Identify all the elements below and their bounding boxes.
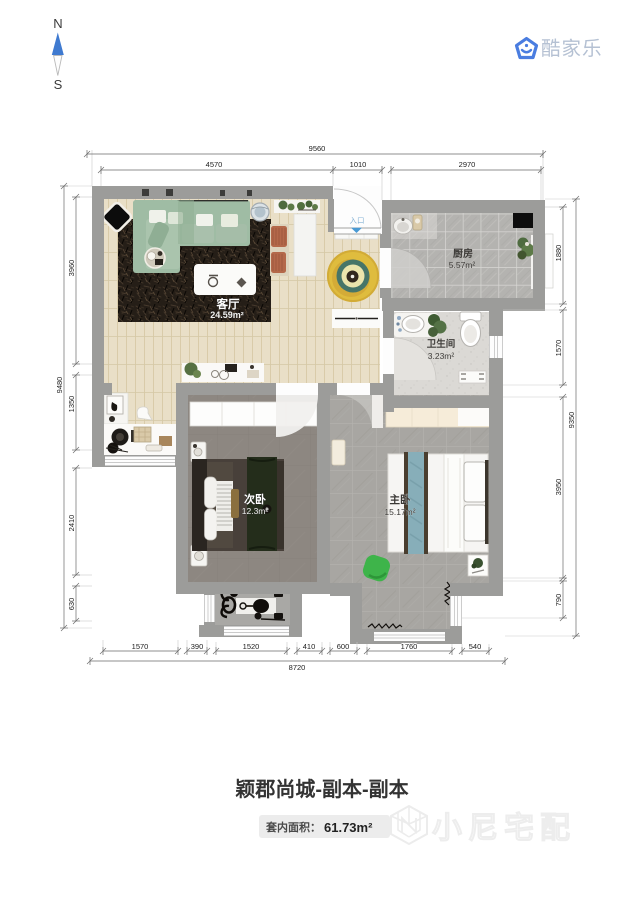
- svg-text:390: 390: [191, 642, 204, 651]
- svg-text:8720: 8720: [289, 663, 306, 672]
- svg-text:5.57m²: 5.57m²: [449, 260, 476, 270]
- svg-text:410: 410: [303, 642, 316, 651]
- svg-text:540: 540: [469, 642, 482, 651]
- svg-text:小尼宅配: 小尼宅配: [432, 811, 576, 845]
- svg-text:1570: 1570: [132, 642, 149, 651]
- svg-text:3.23m²: 3.23m²: [428, 351, 455, 361]
- svg-text:2410: 2410: [67, 515, 76, 532]
- svg-text:9560: 9560: [309, 144, 326, 153]
- svg-text:1880: 1880: [554, 245, 563, 262]
- svg-text:1520: 1520: [243, 642, 260, 651]
- svg-text:N: N: [53, 16, 62, 31]
- svg-text:1350: 1350: [67, 396, 76, 413]
- svg-text:9350: 9350: [567, 412, 576, 429]
- svg-text:颖郡尚城-副本-副本: 颖郡尚城-副本-副本: [235, 777, 408, 801]
- svg-text:厨房: 厨房: [453, 247, 473, 260]
- svg-text:4570: 4570: [206, 160, 223, 169]
- svg-text:1010: 1010: [350, 160, 367, 169]
- svg-text:客厅: 客厅: [216, 297, 240, 311]
- svg-text:套内面积：: 套内面积：: [266, 820, 321, 834]
- svg-text:次卧: 次卧: [244, 492, 266, 506]
- svg-text:3950: 3950: [554, 479, 563, 496]
- svg-text:9480: 9480: [55, 377, 64, 394]
- svg-text:主卧: 主卧: [390, 493, 411, 506]
- svg-text:61.73m²: 61.73m²: [324, 820, 373, 835]
- svg-text:入口: 入口: [350, 216, 365, 225]
- svg-text:630: 630: [67, 598, 76, 611]
- svg-text:24.59m²: 24.59m²: [210, 310, 244, 320]
- svg-text:卫生间: 卫生间: [427, 338, 456, 350]
- svg-text:790: 790: [554, 594, 563, 607]
- svg-text:15.17m²: 15.17m²: [384, 507, 415, 517]
- svg-text:1760: 1760: [401, 642, 418, 651]
- svg-text:3960: 3960: [67, 260, 76, 277]
- svg-text:S: S: [54, 77, 63, 92]
- svg-text:600: 600: [337, 642, 350, 651]
- svg-text:12.3m²: 12.3m²: [242, 506, 269, 516]
- svg-text:2970: 2970: [459, 160, 476, 169]
- svg-text:酷家乐: 酷家乐: [541, 38, 603, 60]
- svg-text:1570: 1570: [554, 340, 563, 357]
